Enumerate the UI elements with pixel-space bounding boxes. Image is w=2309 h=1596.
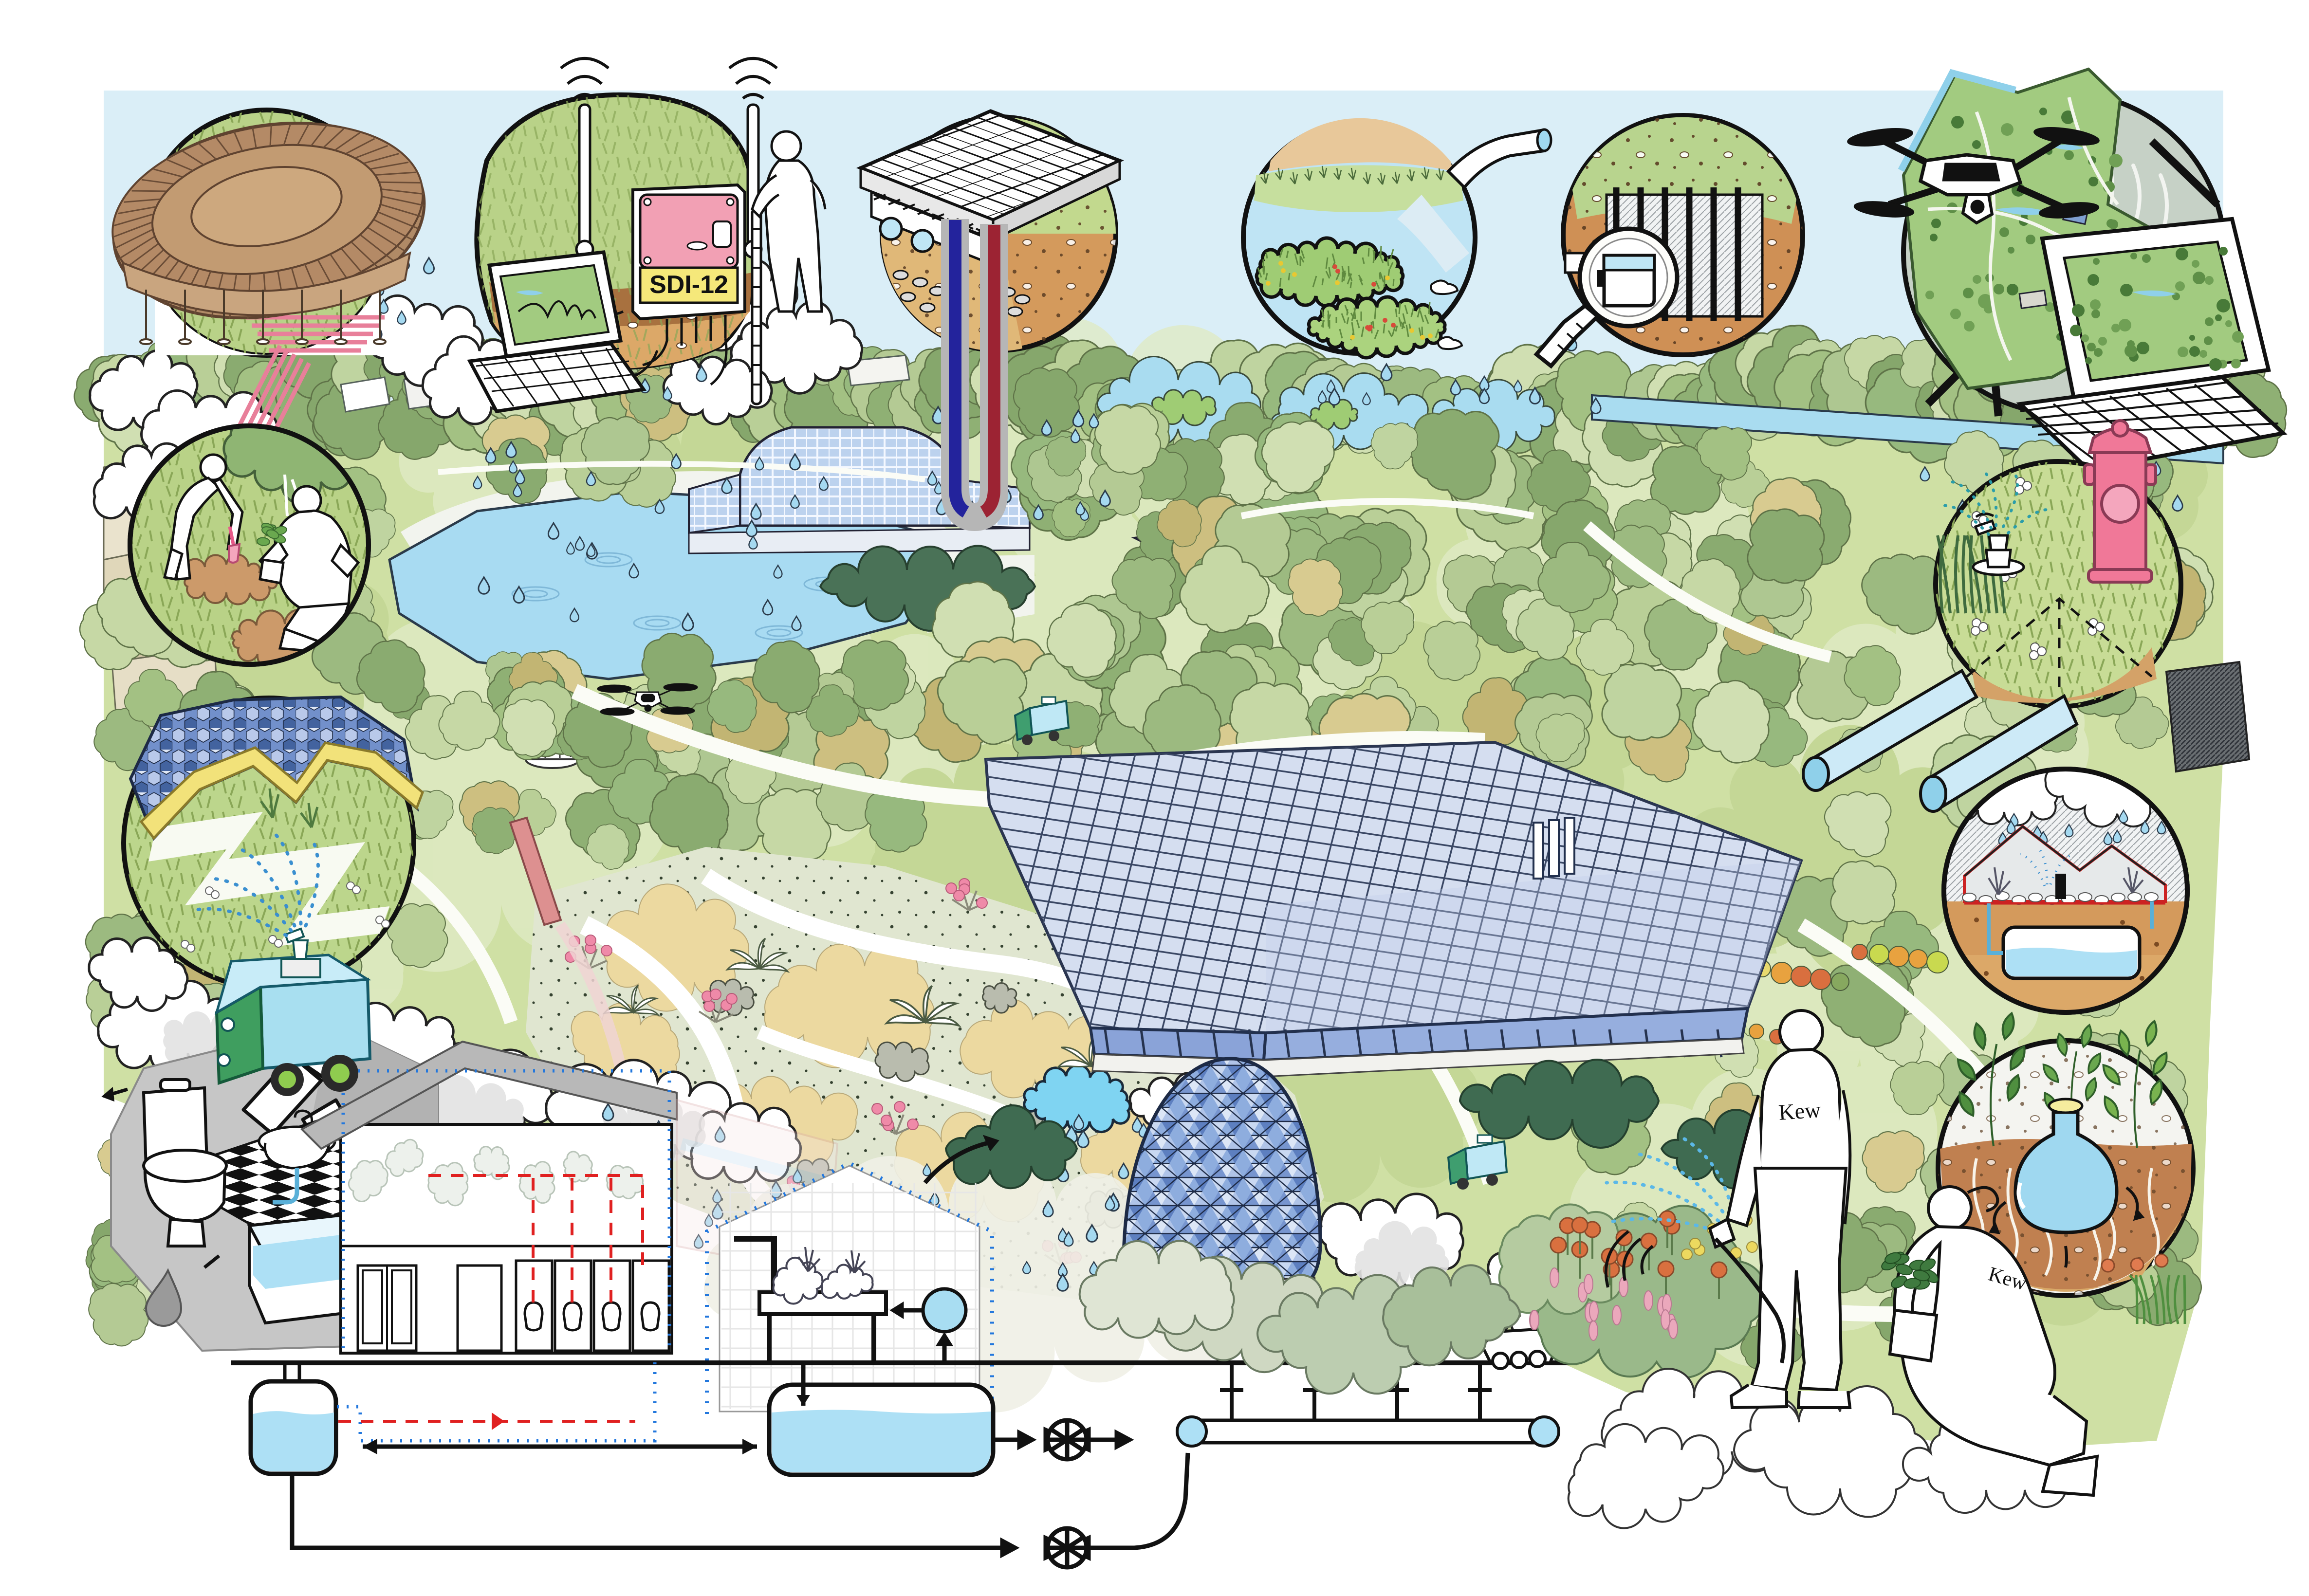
svg-text:Kew: Kew: [1778, 1097, 1822, 1125]
svg-text:SDI-12: SDI-12: [649, 271, 728, 299]
